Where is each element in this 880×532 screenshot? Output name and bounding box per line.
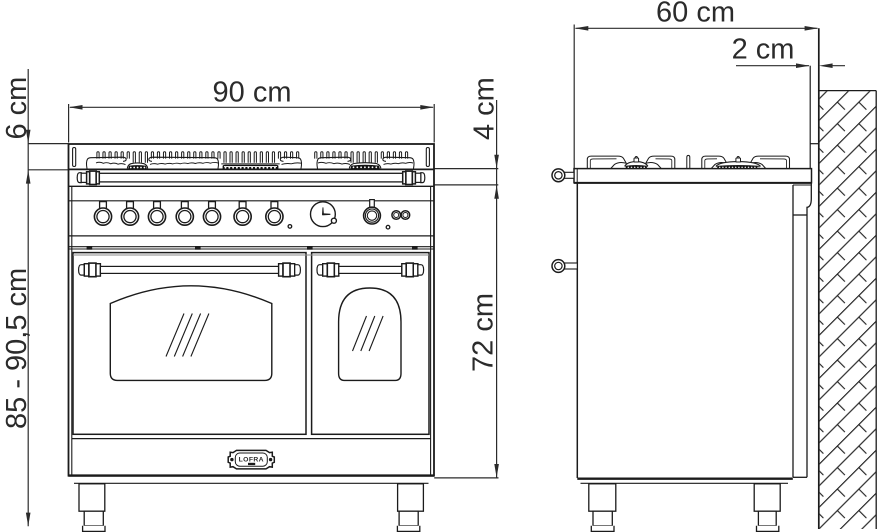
svg-text:LOFRA: LOFRA — [239, 457, 264, 464]
svg-text:2 cm: 2 cm — [732, 34, 795, 66]
svg-text:60 cm: 60 cm — [656, 0, 735, 28]
svg-text:4 cm: 4 cm — [468, 77, 500, 140]
svg-text:6 cm: 6 cm — [1, 77, 33, 140]
svg-text:72 cm: 72 cm — [468, 293, 500, 372]
svg-text:90 cm: 90 cm — [213, 77, 292, 109]
svg-text:85 - 90,5 cm: 85 - 90,5 cm — [1, 268, 33, 429]
